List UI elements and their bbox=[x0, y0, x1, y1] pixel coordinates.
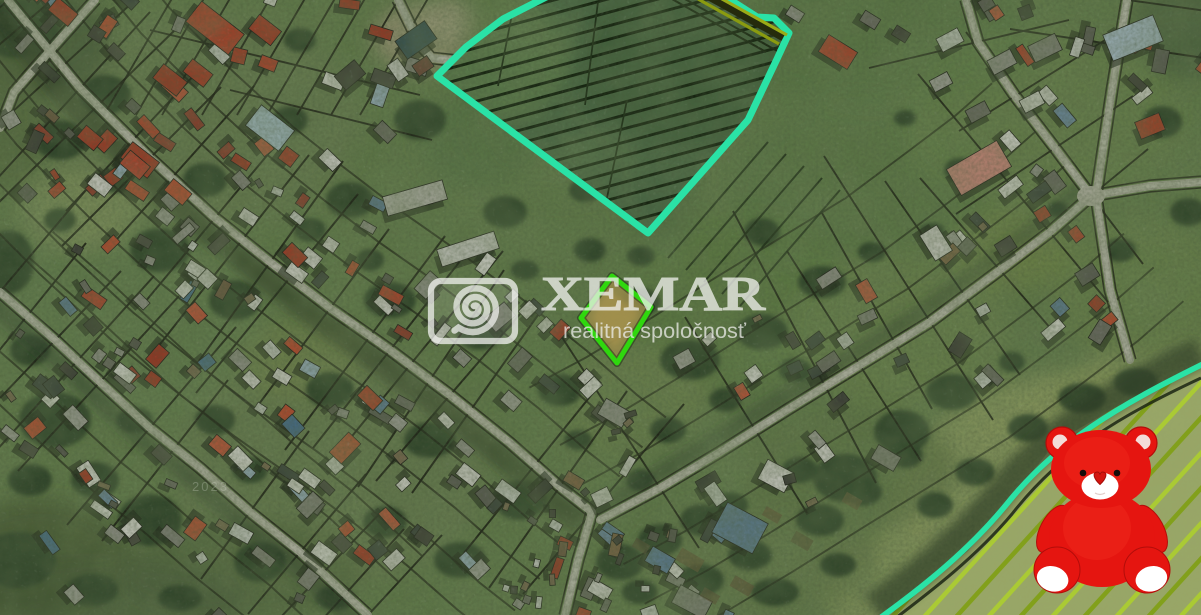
svg-text:XEMAR: XEMAR bbox=[541, 266, 766, 321]
svg-text:realitná spoločnosť: realitná spoločnosť bbox=[563, 320, 747, 343]
svg-text:2023: 2023 bbox=[192, 479, 229, 494]
